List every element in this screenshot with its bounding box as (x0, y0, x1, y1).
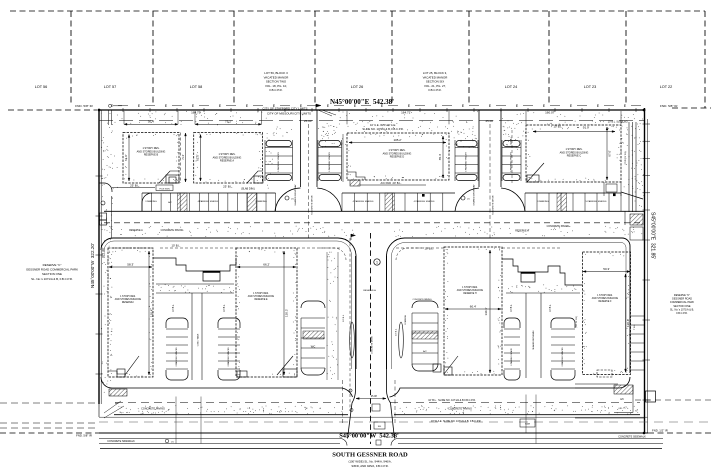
svg-text:160.07': 160.07' (545, 111, 555, 115)
svg-text:164.73': 164.73' (191, 111, 201, 115)
svg-text:N45°00'00"E 542.38': N45°00'00"E 542.38' (330, 98, 394, 106)
svg-text:1 PARKING: 1 PARKING (404, 315, 407, 325)
svg-text:10' B.L.: 10' B.L. (343, 314, 345, 322)
svg-text:RESERVE F: RESERVE F (599, 301, 613, 303)
svg-text:50.3': 50.3' (603, 267, 610, 271)
svg-text:SHARED DRIVEWAY: SHARED DRIVEWAY (532, 330, 535, 350)
svg-text:RESERVE H: RESERVE H (463, 293, 477, 295)
svg-text:1 PARKING SPACE: 1 PARKING SPACE (510, 347, 513, 365)
svg-text:10' B.L.: 10' B.L. (553, 125, 562, 129)
svg-text:75.2': 75.2' (225, 120, 232, 124)
svg-text:2 PARKING SPACES: 2 PARKING SPACES (175, 347, 178, 367)
svg-text:71.0': 71.0' (182, 154, 185, 160)
svg-text:FND. 5/8" IR: FND. 5/8" IR (76, 434, 92, 438)
svg-text:2 PARKING: 2 PARKING (255, 200, 267, 203)
svg-text:RESERVE I: RESERVE I (122, 302, 135, 304)
svg-text:4 PARKING SPACES: 4 PARKING SPACES (353, 200, 374, 203)
svg-text:CONCRETE DRIVE: CONCRETE DRIVE (493, 195, 495, 215)
svg-text:AND STORES BUILDING: AND STORES BUILDING (457, 289, 484, 292)
svg-text:10' B.L.: 10' B.L. (171, 244, 180, 248)
svg-text:25' B.L.: 25' B.L. (223, 184, 233, 188)
svg-text:LOT 56: LOT 56 (35, 85, 48, 89)
svg-text:CONCRETE DRIVE: CONCRETE DRIVE (372, 335, 374, 354)
svg-text:W/C: W/C (311, 347, 316, 349)
svg-text:67.0': 67.0' (608, 150, 612, 157)
svg-text:10' B.L. SLIDE NO.: 10' B.L. SLIDE NO. (608, 121, 629, 124)
svg-text:2 PARKING SPACES: 2 PARKING SPACES (561, 347, 564, 367)
svg-text:10' W.A.E. SLIDE NO. 1071/A &: 10' W.A.E. SLIDE NO. 1071/A & B, F.B.C.P… (431, 420, 482, 423)
svg-text:3 PARKING SPACES: 3 PARKING SPACES (465, 151, 468, 171)
svg-text:LOT 22: LOT 22 (660, 85, 673, 89)
svg-text:130.3': 130.3' (484, 307, 488, 316)
svg-text:LOT 23: LOT 23 (584, 85, 597, 89)
svg-text:3 PARKING SPACES: 3 PARKING SPACES (328, 151, 331, 171)
svg-text:F.B.C.P.R.: F.B.C.P.R. (269, 88, 282, 92)
svg-text:SECTION ONE: SECTION ONE (42, 272, 62, 276)
svg-text:F.B.C.P.R.: F.B.C.P.R. (428, 88, 441, 92)
svg-text:A/C: A/C (423, 350, 427, 353)
svg-text:10' B.L.: 10' B.L. (550, 304, 552, 312)
svg-text:10' B.L.: 10' B.L. (511, 304, 513, 312)
svg-text:A/C: A/C (620, 398, 624, 401)
svg-text:3 PARKING SPACES: 3 PARKING SPACES (510, 151, 513, 171)
svg-text:7' B.L.: 7' B.L. (634, 324, 636, 331)
svg-text:1 STORY RES.: 1 STORY RES. (120, 296, 136, 298)
svg-text:CONCRETE SIDEWALK: CONCRETE SIDEWALK (618, 436, 646, 439)
svg-text:CONCRETE PAVING: CONCRETE PAVING (448, 408, 472, 411)
svg-text:1 STORY RES.: 1 STORY RES. (597, 295, 613, 297)
svg-text:(SLAB DIM.): (SLAB DIM.) (241, 188, 255, 191)
svg-text:25.00': 25.00' (485, 119, 494, 123)
svg-text:60.4': 60.4' (470, 304, 477, 308)
svg-text:10' B.L.: 10' B.L. (396, 328, 398, 336)
svg-text:CONCRETE PAVING: CONCRETE PAVING (547, 225, 570, 228)
svg-text:SL. No.'s 1071/A & B,: SL. No.'s 1071/A & B, (670, 308, 694, 311)
svg-text:10' B.L. SLIDE NO. 1071/A & B: 10' B.L. SLIDE NO. 1071/A & B F.B.C.P.R. (428, 399, 476, 402)
svg-text:RESERVE A: RESERVE A (220, 160, 234, 163)
svg-text:25' B.L.: 25' B.L. (130, 183, 140, 187)
svg-text:RESERVE D: RESERVE D (390, 156, 405, 159)
svg-text:RESERVE A: RESERVE A (363, 289, 376, 292)
svg-text:RESERVE "C": RESERVE "C" (43, 263, 62, 267)
svg-text:61.0': 61.0' (124, 154, 128, 161)
svg-text:(100' WIDE) SL. No. 944/A, 946: (100' WIDE) SL. No. 944/A, 946/A, (349, 460, 392, 464)
svg-text:SHARED DRIVEWAY: SHARED DRIVEWAY (473, 184, 476, 206)
svg-text:1 STORY RES.: 1 STORY RES. (462, 287, 478, 289)
svg-text:CONC. WALK: CONC. WALK (197, 333, 200, 346)
svg-text:CONCRETE PAVING: CONCRETE PAVING (161, 229, 184, 232)
svg-text:130.3': 130.3' (284, 309, 288, 318)
svg-text:AND STORES BUILDING: AND STORES BUILDING (248, 295, 275, 298)
svg-text:164.71': 164.71' (401, 111, 411, 115)
svg-text:F.B.C.P.R.: F.B.C.P.R. (676, 312, 688, 315)
svg-text:FND. 5/8" IR: FND. 5/8" IR (75, 104, 93, 108)
svg-text:AND STORES BUILDING: AND STORES BUILDING (115, 298, 142, 301)
svg-text:105.2': 105.2' (393, 138, 402, 142)
svg-text:N45°00'00"W 322.20': N45°00'00"W 322.20' (90, 243, 95, 288)
svg-text:1: 1 (376, 261, 378, 265)
svg-text:S45°00'00"E 321.85': S45°00'00"E 321.85' (650, 212, 656, 259)
svg-text:GESSNER ROAD: GESSNER ROAD (672, 298, 692, 301)
svg-text:66.2': 66.2' (263, 262, 270, 266)
svg-text:SHARED DRIVEWAY: SHARED DRIVEWAY (294, 184, 297, 206)
svg-text:2 PARKING SPACES: 2 PARKING SPACES (227, 347, 230, 367)
svg-text:10' U.E. W/5'x20' A.E.: 10' U.E. W/5'x20' A.E. (370, 123, 396, 127)
svg-text:CITY OF MISSOURI CITY LIMITS: CITY OF MISSOURI CITY LIMITS (267, 111, 311, 115)
svg-text:10' B.L.: 10' B.L. (173, 304, 175, 312)
svg-text:10' B.L.: 10' B.L. (510, 136, 513, 144)
svg-text:SLIDE NO. 1071/A & B, F.B.C.P.: SLIDE NO. 1071/A & B, F.B.C.P.R. (362, 127, 403, 131)
svg-text:SECTION ONE: SECTION ONE (673, 305, 691, 308)
svg-text:RESERVE B: RESERVE B (144, 154, 159, 157)
svg-text:RESERVE E: RESERVE E (254, 299, 268, 301)
svg-text:SOUTH GESSNER ROAD: SOUTH GESSNER ROAD (332, 452, 408, 459)
svg-text:3 PARKING SPACES: 3 PARKING SPACES (277, 151, 280, 171)
svg-text:POLE SIGN: POLE SIGN (159, 188, 170, 190)
svg-text:27.8' (21' R1): 27.8' (21' R1) (625, 151, 627, 164)
svg-text:4 PARKING SPACES: 4 PARKING SPACES (198, 200, 219, 203)
svg-text:RESERVE A: RESERVE A (129, 229, 143, 232)
svg-text:S45°00'00"W 542.38': S45°00'00"W 542.38' (339, 433, 399, 440)
svg-text:RESERVE A: RESERVE A (515, 230, 529, 233)
svg-text:945/D, AND 945/A, F.B.C.P.R.: 945/D, AND 945/A, F.B.C.P.R. (351, 464, 388, 468)
svg-text:GESSNER ROAD COMMERCIAL PARK: GESSNER ROAD COMMERCIAL PARK (26, 268, 78, 272)
svg-text:A/C: A/C (168, 201, 172, 204)
svg-text:25.00': 25.00' (304, 119, 313, 123)
svg-text:3 PARKING: 3 PARKING (537, 200, 549, 203)
svg-text:3 PARKING: 3 PARKING (145, 200, 157, 203)
svg-text:62.0': 62.0' (196, 154, 200, 161)
svg-text:FND. 1/2" IR: FND. 1/2" IR (652, 429, 668, 433)
svg-text:65.4': 65.4' (438, 153, 442, 160)
svg-text:CITY OF STAFFORD CITY LIMITS: CITY OF STAFFORD CITY LIMITS (263, 106, 308, 110)
svg-text:LOT 24: LOT 24 (505, 85, 518, 89)
svg-text:5 PARKING SPACES: 5 PARKING SPACES (586, 200, 607, 203)
svg-text:RESERVE C: RESERVE C (567, 155, 582, 158)
svg-text:130.4': 130.4' (149, 309, 153, 318)
svg-text:(T.B. 21' R1): (T.B. 21' R1) (576, 316, 578, 328)
svg-text:A/C PAD 20' B.L.: A/C PAD 20' B.L. (380, 181, 401, 185)
svg-text:CONCRETE DRIVE: CONCRETE DRIVE (311, 195, 313, 215)
svg-text:CONCRETE PAVING: CONCRETE PAVING (141, 408, 165, 411)
svg-text:COMMERCIAL PARK: COMMERCIAL PARK (670, 301, 695, 304)
svg-text:LOT 58: LOT 58 (190, 85, 203, 89)
svg-text:30.4': 30.4' (148, 120, 155, 124)
svg-text:58.3': 58.3' (127, 262, 134, 266)
svg-text:LOT 26: LOT 26 (351, 85, 364, 89)
svg-text:91.9': 91.9' (583, 126, 590, 130)
svg-text:25.00': 25.00' (371, 396, 378, 398)
svg-text:FND. 5/8" IR: FND. 5/8" IR (660, 104, 678, 108)
svg-text:LOT 57: LOT 57 (104, 85, 117, 89)
svg-text:CONCRETE PAVING: CONCRETE PAVING (412, 298, 431, 301)
svg-text:10' B.L.: 10' B.L. (424, 247, 433, 251)
svg-text:AND STORES BUILDING: AND STORES BUILDING (592, 297, 619, 300)
svg-text:10' B.L.: 10' B.L. (224, 304, 226, 312)
svg-text:4 PARKING SPACES: 4 PARKING SPACES (414, 200, 435, 203)
svg-text:1 STORY RES.: 1 STORY RES. (253, 293, 269, 295)
svg-text:CONCRETE SIDEWALK: CONCRETE SIDEWALK (107, 440, 135, 443)
svg-text:322.20': 322.20' (102, 247, 106, 258)
svg-text:130.4': 130.4' (626, 319, 630, 328)
svg-text:SIG: SIG (378, 426, 382, 428)
svg-text:SL. No.'s 1071/A & B, F.B.C.P.: SL. No.'s 1071/A & B, F.B.C.P.R. (31, 277, 73, 281)
svg-text:RESERVE "C": RESERVE "C" (674, 294, 690, 297)
